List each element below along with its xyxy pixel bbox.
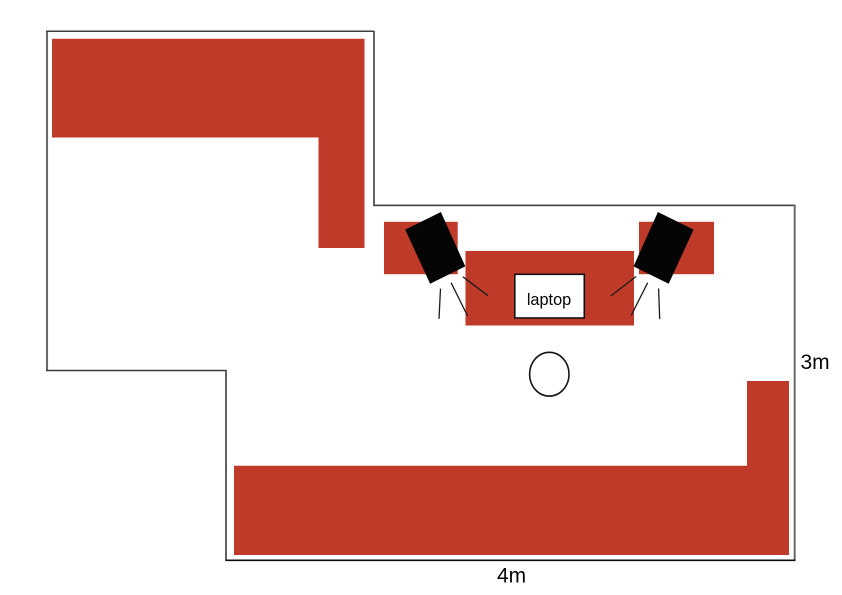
svg-text:3m: 3m (801, 351, 830, 374)
svg-text:laptop: laptop (527, 291, 571, 309)
svg-text:4m: 4m (497, 565, 526, 588)
